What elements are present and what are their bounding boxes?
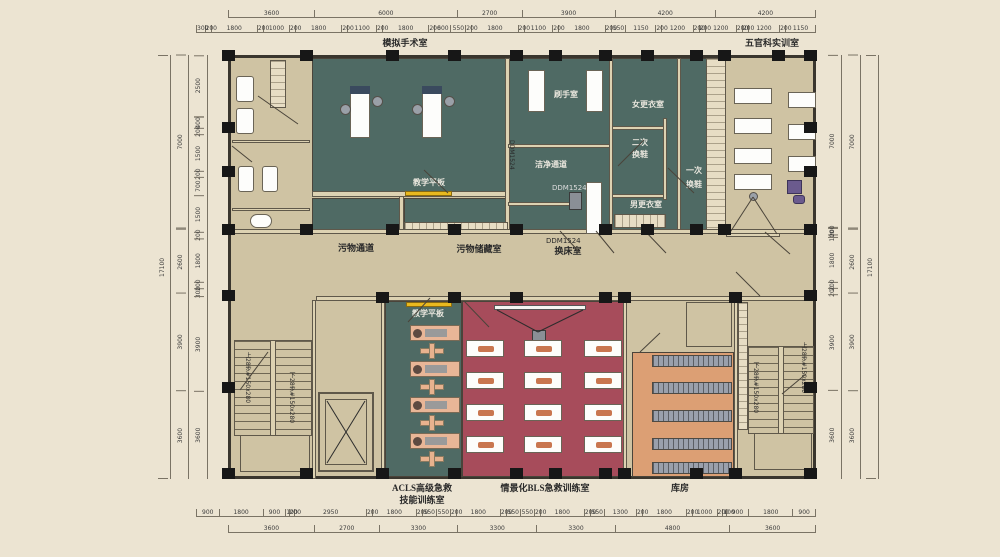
wall [232, 140, 310, 143]
dim-value: 1800 [559, 25, 605, 32]
structural-column [804, 122, 817, 133]
structural-column [448, 50, 461, 61]
dim-value: 3600 [848, 390, 858, 479]
bench [614, 214, 666, 228]
ent-table [734, 118, 772, 134]
structural-column [510, 468, 523, 479]
room-first-shoe-corridor [680, 58, 708, 233]
exam-chair [787, 180, 802, 194]
toilet-stall [238, 166, 254, 192]
label-dirty-storage: 污物储藏室 [444, 244, 514, 254]
wall [677, 58, 681, 233]
label-stairs-left-up: 上28步#150x280 [244, 352, 250, 403]
label-first-shoe-1: 一次 [682, 166, 706, 175]
wall [612, 126, 664, 130]
dim-value: 1200 [706, 25, 737, 32]
structural-column [222, 468, 235, 479]
dim-value: 1800 [383, 25, 429, 32]
acls-manikin-body [425, 401, 447, 409]
structural-column [804, 290, 817, 301]
dim-value: 3600 [730, 525, 816, 532]
chart-stand-hook [749, 192, 758, 201]
floor-plan: 360060002700390042004200 300200180020010… [0, 0, 1000, 557]
dim-value: 1800 [194, 238, 204, 282]
room-title-acls-1: ACLS高级急救 [372, 483, 472, 493]
structural-column [300, 50, 313, 61]
cpr-manikin [536, 442, 552, 448]
acls-manikin-head [413, 437, 422, 446]
dim-value: 4200 [716, 10, 816, 17]
dim-col-left-outer: 17100 [158, 55, 171, 479]
cpr-manikin [596, 346, 612, 352]
dim-value: 1150 [626, 25, 656, 32]
label-men-change: 男更衣室 [616, 200, 676, 209]
dim-value: 1100 [348, 25, 377, 32]
dim-value: 200 [194, 232, 204, 238]
room-title-storage: 库房 [660, 483, 700, 493]
dim-value: 6000 [315, 10, 458, 17]
tiled-wall [738, 302, 748, 430]
structural-column [599, 50, 612, 61]
structural-column [804, 382, 817, 393]
dim-col-left-mid: 7000260039003600 [176, 55, 189, 479]
cpr-manikin [596, 410, 612, 416]
dim-value: 900 [264, 509, 287, 516]
dim-value: 1150 [786, 25, 816, 32]
label-teach-board-top: 教学平板 [400, 178, 458, 187]
structural-column [804, 468, 817, 479]
toilet-stall [262, 166, 278, 192]
dim-value: 17100 [866, 55, 876, 479]
stairs-right-landing [754, 434, 812, 470]
structural-column [599, 224, 612, 235]
dim-value: 1100 [525, 25, 554, 32]
dim-value: 1800 [749, 509, 793, 516]
ent-table [734, 88, 772, 104]
dim-value: 600 [435, 25, 451, 32]
dim-value: 550 [591, 509, 605, 516]
dim-value: 1000 [264, 25, 290, 32]
ent-table [734, 174, 772, 190]
structural-column [804, 50, 817, 61]
dim-value: 3300 [537, 525, 616, 532]
bls-table [584, 372, 622, 389]
label-women-change: 女更衣室 [618, 100, 678, 109]
structural-column [690, 224, 703, 235]
room-title-bls: 情景化BLS急救训练室 [470, 483, 620, 493]
dim-value: 900 [793, 509, 816, 516]
dim-value: 2600 [176, 229, 186, 294]
dim-value: 7000 [848, 55, 858, 229]
cpr-manikin [536, 410, 552, 416]
dim-value: 550 [437, 509, 451, 516]
dim-value: 7000 [828, 55, 838, 228]
dim-value: 3600 [828, 390, 838, 479]
dim-value: 3600 [228, 10, 315, 17]
label-door-mark-bedchange: DDM1524 [546, 237, 581, 245]
structural-column [549, 468, 562, 479]
dim-value: 17100 [158, 55, 168, 479]
dim-value: 3900 [523, 10, 616, 17]
bls-table [584, 340, 622, 357]
structural-column [729, 468, 742, 479]
label-second-shoe-1: 二次 [622, 138, 658, 147]
cpr-manikin [536, 378, 552, 384]
structural-column [386, 224, 399, 235]
label-door-mark-scrub: DDM1524 [552, 184, 587, 192]
dim-value: 3900 [194, 296, 204, 391]
structural-column [804, 166, 817, 177]
dim-value: 200 [194, 128, 204, 134]
storage-shelf [652, 382, 732, 394]
scrub-sink [586, 70, 603, 112]
structural-column [222, 50, 235, 61]
wall [232, 208, 310, 211]
structural-column [510, 224, 523, 235]
bls-table [466, 436, 504, 453]
structural-column [690, 50, 703, 61]
dim-value: 1800 [828, 237, 838, 282]
dim-value: 4200 [616, 10, 716, 17]
dim-value: 3600 [176, 390, 186, 479]
cpr-manikin [596, 442, 612, 448]
label-dirty-corridor: 污物通道 [328, 243, 384, 253]
room-title-ent: 五官科实训室 [722, 38, 822, 48]
dim-value: 2700 [458, 10, 523, 17]
dim-value: 1800 [373, 509, 417, 516]
surgical-light [444, 96, 455, 107]
acls-manikin-body [425, 365, 447, 373]
wall [508, 202, 578, 206]
wall [612, 194, 664, 198]
dim-value: 2500 [194, 55, 204, 117]
structural-column [618, 292, 631, 303]
storage-shelf [652, 438, 732, 450]
structural-column [510, 50, 523, 61]
dim-value: 700 [194, 177, 204, 195]
cpr-manikin [536, 346, 552, 352]
surgical-light [340, 104, 351, 115]
label-first-shoe-2: 换鞋 [682, 180, 706, 189]
bls-table [524, 436, 562, 453]
structural-column [804, 224, 817, 235]
structural-column [772, 50, 785, 61]
ent-table [734, 148, 772, 164]
teach-board-strip-top [405, 191, 452, 196]
acls-table [429, 379, 435, 395]
bls-table [466, 404, 504, 421]
elevator-car [325, 399, 367, 465]
bls-table [524, 404, 562, 421]
dim-value: 550 [612, 25, 627, 32]
room-title-acls-2: 技能训练室 [382, 495, 462, 505]
bls-table [466, 372, 504, 389]
structural-column [599, 468, 612, 479]
stairs-right-rail [778, 346, 784, 434]
operating-table-head [422, 86, 442, 94]
equipment-cabinet [569, 192, 582, 210]
label-second-shoe-2: 换鞋 [622, 150, 658, 159]
structural-column [222, 290, 235, 301]
dim-col-right-outer: 17100 [866, 55, 879, 479]
dim-row-top-segments: 360060002700390042004200 [228, 6, 816, 18]
dim-row-bottom-detail: 9001800900100200295020018002005505502001… [196, 505, 816, 517]
bls-table [584, 404, 622, 421]
cpr-manikin [596, 378, 612, 384]
surgical-light [412, 104, 423, 115]
dim-value: 3600 [194, 391, 204, 479]
structural-column [448, 292, 461, 303]
structural-column [599, 292, 612, 303]
dim-row-bottom-segments: 3600270033003300330048003600 [228, 521, 816, 533]
acls-manikin-head [413, 329, 422, 338]
dim-value: 3300 [380, 525, 459, 532]
cpr-manikin [478, 346, 494, 352]
structural-column [641, 224, 654, 235]
dim-value: 3600 [228, 525, 315, 532]
storage-shelf [652, 355, 732, 367]
dim-value: 2600 [848, 229, 858, 294]
label-door-mark-vertical: DDM1524 [508, 140, 514, 170]
acls-manikin-head [413, 365, 422, 374]
structural-column [729, 292, 742, 303]
dim-value: 1800 [296, 25, 342, 32]
toilet-stall [236, 108, 254, 134]
dim-value: 1800 [643, 509, 687, 516]
storage-small-room [686, 302, 732, 347]
structural-column [222, 382, 235, 393]
dim-value: 1200 [749, 25, 780, 32]
cpr-manikin [478, 410, 494, 416]
room-simulated-or [312, 58, 508, 196]
label-stairs-left-down: 下28步#150x280 [288, 372, 294, 423]
scrub-sink [528, 70, 545, 112]
wall [623, 301, 627, 477]
label-scrub: 刷手室 [546, 90, 586, 99]
structural-column [718, 224, 731, 235]
stairs-left-landing [240, 436, 310, 472]
label-teach-board-bottom: 教学平板 [400, 309, 456, 318]
bls-table [466, 340, 504, 357]
dim-value: 1500 [194, 134, 204, 171]
structural-column [222, 166, 235, 177]
structural-column [300, 468, 313, 479]
structural-column [641, 50, 654, 61]
dim-value: 900 [196, 509, 220, 516]
dim-value: 1300 [605, 509, 637, 516]
dim-value: 1500 [194, 195, 204, 232]
structural-column [448, 468, 461, 479]
dim-value: 7000 [176, 55, 186, 229]
dim-value: 550 [507, 509, 521, 516]
wall [312, 300, 316, 479]
label-bed-change: 换床室 [546, 246, 590, 256]
surgical-light [372, 96, 383, 107]
dim-value: 3300 [458, 525, 537, 532]
dim-value: 3900 [176, 293, 186, 390]
storage-shelf [652, 410, 732, 422]
ent-table [788, 92, 816, 108]
stairs-left-rail [270, 340, 276, 436]
structural-column [386, 50, 399, 61]
dim-value: 300 [194, 288, 204, 296]
structural-column [222, 224, 235, 235]
structural-column [448, 224, 461, 235]
dim-value: 3900 [848, 293, 858, 390]
locker-strip [270, 60, 286, 108]
dim-value: 1800 [541, 509, 585, 516]
dim-value: 4800 [616, 525, 730, 532]
acls-table [429, 415, 435, 431]
dim-col-left-inner: 2500400200150020070015002001800200300390… [194, 55, 208, 479]
bls-table [584, 436, 622, 453]
dim-value: 2950 [295, 509, 367, 516]
chart-stand-base [726, 233, 780, 237]
wall [609, 58, 613, 233]
operating-table-head [350, 86, 370, 94]
dim-value: 1200 [662, 25, 693, 32]
dim-value: 1800 [212, 25, 258, 32]
dim-col-right-mid: 7000260039003600 [848, 55, 861, 479]
dim-col-right-inner: 7000200100180020020039003600 [828, 55, 842, 479]
label-clean-corridor: 洁净通道 [524, 160, 578, 169]
dim-value: 1800 [457, 509, 501, 516]
acls-table [429, 451, 435, 467]
dim-row-top-detail: 3002001800200100020018002001100200180020… [196, 21, 816, 33]
dim-value: 550 [521, 509, 535, 516]
wall [663, 118, 667, 200]
bls-table [524, 372, 562, 389]
dim-value: 1000 [693, 509, 718, 516]
room-title-or: 模拟手术室 [360, 38, 450, 48]
structural-column [510, 292, 523, 303]
dim-value: 1800 [220, 509, 264, 516]
structural-column [222, 122, 235, 133]
structural-column [690, 468, 703, 479]
wall [508, 144, 612, 148]
teach-board-strip-bottom [406, 302, 452, 307]
wall [381, 301, 385, 477]
structural-column [376, 468, 389, 479]
cpr-manikin [478, 442, 494, 448]
structural-column [718, 50, 731, 61]
dim-value: 300 [196, 25, 206, 32]
acls-manikin-body [425, 329, 447, 337]
projection-screen [494, 305, 586, 310]
toilet-stall [236, 76, 254, 102]
dim-value: 1800 [472, 25, 518, 32]
dim-value: 200 [194, 171, 204, 177]
cpr-manikin [478, 378, 494, 384]
dim-value: 200 [828, 288, 838, 294]
structural-column [300, 224, 313, 235]
sink [250, 214, 272, 228]
acls-manikin-head [413, 401, 422, 410]
dim-value: 3900 [828, 294, 838, 390]
dim-value: 550 [451, 25, 466, 32]
tiled-wall [706, 58, 726, 233]
dim-value: 900 [727, 509, 750, 516]
dim-value: 2700 [315, 525, 380, 532]
exam-chair-stool [793, 195, 805, 204]
acls-manikin-body [425, 437, 447, 445]
bls-table [524, 340, 562, 357]
structural-column [376, 292, 389, 303]
label-stairs-right-down: 下28步#150x280 [752, 362, 758, 413]
dim-value: 550 [423, 509, 437, 516]
structural-column [549, 50, 562, 61]
acls-table [429, 343, 435, 359]
structural-column [618, 468, 631, 479]
